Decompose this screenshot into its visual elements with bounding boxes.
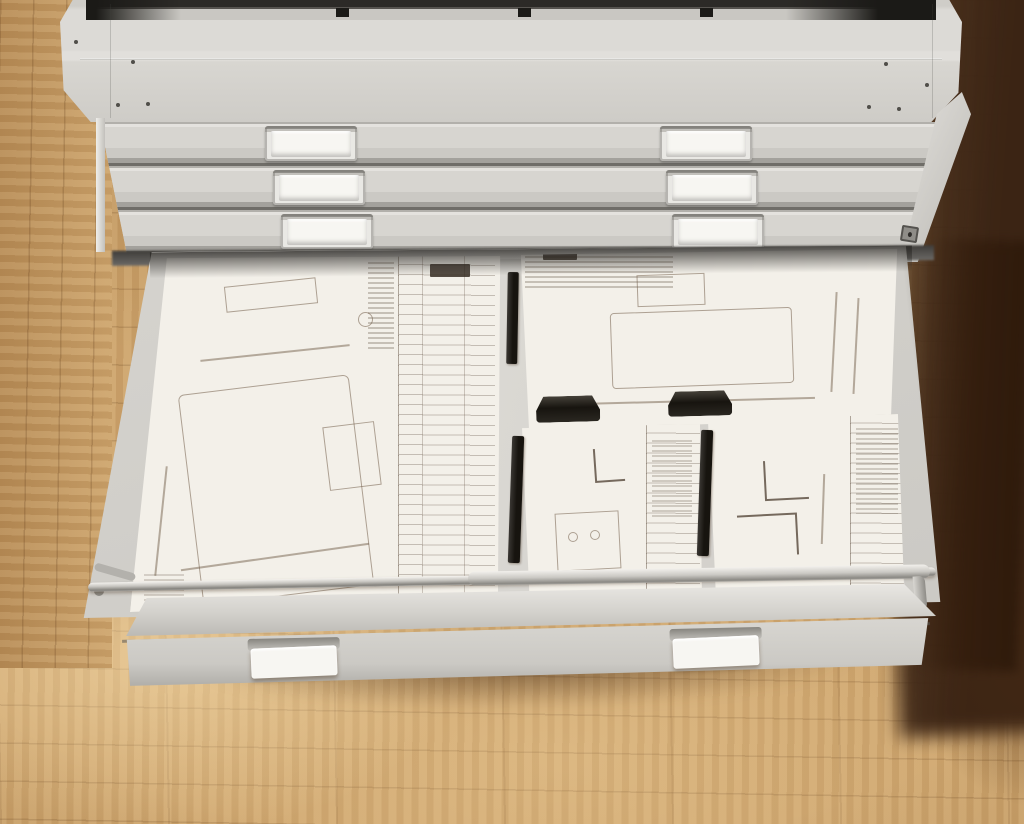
drawer-label-card	[672, 635, 759, 669]
drawer-label-card	[279, 175, 359, 201]
dimension-line	[821, 474, 825, 544]
rivet-icon	[897, 107, 901, 111]
cabinet-left-edge	[96, 118, 105, 252]
cabinet-top	[60, 0, 962, 122]
rivet-icon	[116, 103, 120, 107]
rivet-icon	[925, 83, 929, 87]
drawer-label-card	[271, 131, 351, 157]
part-outline	[610, 307, 795, 389]
wedge-clamp[interactable]	[536, 395, 601, 423]
clamp-strip[interactable]	[506, 272, 519, 364]
wedge-clamp[interactable]	[668, 390, 733, 417]
drawer-side-shadow	[917, 238, 1024, 671]
vent-slot-icon	[700, 8, 713, 17]
drawer-label-card	[666, 131, 746, 157]
title-block-rows	[398, 256, 495, 612]
bent-profile	[737, 512, 799, 557]
drawer-label-card	[672, 175, 752, 201]
blueprint-sheet-large	[130, 256, 502, 612]
drawer-closed-2[interactable]	[100, 166, 942, 210]
photo-plan-cabinet-scene	[0, 0, 1024, 824]
lock-icon[interactable]	[900, 225, 919, 243]
dimension-line	[200, 344, 349, 361]
detail-circle	[590, 530, 600, 540]
part-outline	[322, 421, 381, 491]
vent-slot-icon	[518, 8, 531, 17]
title-block-text	[856, 428, 898, 514]
drawer-handle[interactable]	[281, 214, 373, 249]
drawer-handle[interactable]	[660, 126, 752, 161]
corner-seam	[110, 4, 111, 118]
bent-profile	[593, 447, 625, 483]
drawer-stack	[100, 122, 942, 254]
drawer-label-card	[678, 219, 758, 245]
drawer-handle[interactable]	[273, 170, 365, 205]
rivet-icon	[146, 102, 150, 106]
drawer-label-card	[287, 219, 367, 245]
drawer-label-card	[250, 645, 337, 679]
rivet-icon	[74, 40, 78, 44]
vent-slot-icon	[336, 8, 349, 17]
part-outline	[224, 277, 318, 312]
drawer-handle[interactable]	[672, 214, 764, 249]
title-block-text	[652, 440, 692, 520]
open-drawer-handle[interactable]	[248, 637, 341, 683]
detail-circle	[358, 312, 373, 327]
part-outline	[555, 510, 622, 571]
rivet-icon	[884, 62, 888, 66]
part-outline	[636, 273, 705, 307]
open-drawer-handle[interactable]	[669, 627, 762, 673]
drawer-closed-1[interactable]	[100, 122, 942, 166]
part-outline	[178, 374, 375, 605]
detail-circle	[568, 532, 578, 542]
dimension-line	[830, 292, 837, 392]
dimension-line	[154, 466, 167, 576]
drawer-handle[interactable]	[265, 126, 357, 161]
drawer-handle[interactable]	[666, 170, 758, 205]
title-block-divider	[464, 256, 465, 612]
bent-profile	[763, 459, 809, 501]
title-block-divider	[422, 256, 423, 612]
rivet-icon	[867, 105, 871, 109]
corner-seam	[932, 4, 933, 118]
dimension-line	[852, 298, 859, 394]
rivet-icon	[131, 60, 135, 64]
cabinet-top-opening	[86, 0, 936, 20]
top-fold-highlight	[80, 58, 942, 60]
